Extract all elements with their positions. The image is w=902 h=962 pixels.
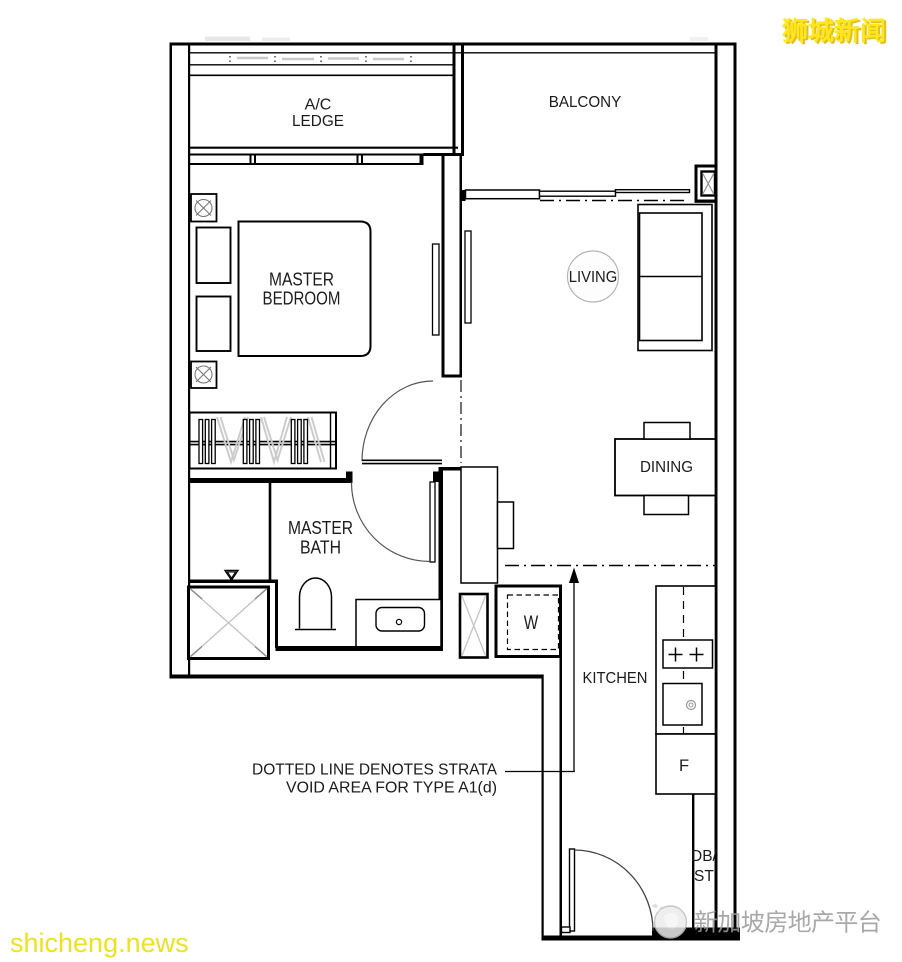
svg-text:BEDROOM: BEDROOM: [263, 289, 341, 309]
svg-text:KITCHEN: KITCHEN: [583, 670, 648, 687]
svg-text:LEDGE: LEDGE: [292, 113, 344, 130]
svg-text:VOID AREA FOR TYPE A1(d): VOID AREA FOR TYPE A1(d): [286, 780, 497, 797]
svg-text:MASTER: MASTER: [288, 518, 353, 538]
svg-text:ST: ST: [694, 868, 714, 885]
svg-text:DB/: DB/: [691, 848, 718, 865]
svg-text:新加坡房地产平台: 新加坡房地产平台: [694, 910, 881, 937]
svg-text:狮城新闻: 狮城新闻: [782, 16, 886, 46]
svg-text:BALCONY: BALCONY: [549, 94, 622, 111]
svg-text:A/C: A/C: [305, 97, 332, 114]
svg-text:DOTTED LINE DENOTES STRATA: DOTTED LINE DENOTES STRATA: [252, 762, 497, 779]
svg-text:LIVING: LIVING: [569, 269, 618, 286]
svg-text:F: F: [679, 757, 689, 775]
svg-text:DINING: DINING: [640, 459, 693, 476]
svg-text:W: W: [524, 613, 539, 634]
svg-text:shicheng.news: shicheng.news: [10, 928, 189, 958]
svg-text:MASTER: MASTER: [269, 270, 334, 290]
svg-text:BATH: BATH: [300, 538, 341, 558]
